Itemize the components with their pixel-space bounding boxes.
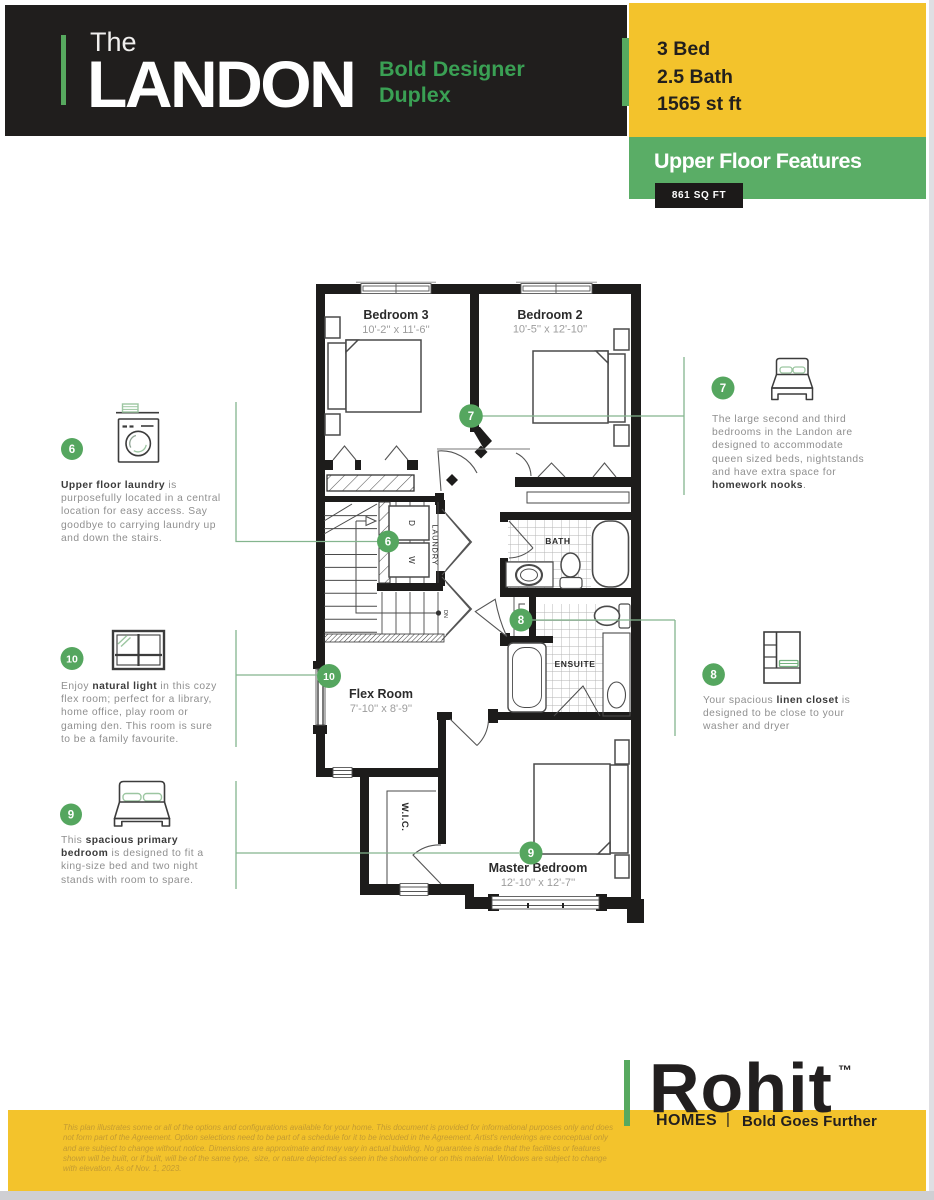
svg-text:8: 8	[518, 615, 525, 627]
svg-text:LAUNDRY: LAUNDRY	[431, 524, 440, 565]
svg-text:Bedroom 3: Bedroom 3	[363, 308, 428, 322]
svg-text:6: 6	[69, 444, 75, 456]
svg-text:7: 7	[468, 411, 474, 423]
svg-text:10'-5'' x 12'-10'': 10'-5'' x 12'-10''	[513, 324, 587, 336]
svg-text:10: 10	[66, 654, 78, 666]
svg-text:7: 7	[720, 383, 726, 395]
svg-text:Flex Room: Flex Room	[349, 687, 413, 701]
svg-text:Master Bedroom: Master Bedroom	[489, 861, 588, 875]
svg-text:D: D	[407, 520, 416, 526]
svg-text:W: W	[407, 556, 416, 564]
svg-text:8: 8	[710, 670, 717, 682]
svg-text:9: 9	[528, 848, 534, 860]
svg-text:ENSUITE: ENSUITE	[554, 659, 595, 669]
svg-text:10'-2'' x 11'-6'': 10'-2'' x 11'-6''	[362, 324, 429, 336]
svg-text:DN: DN	[442, 610, 448, 618]
svg-text:Bedroom 2: Bedroom 2	[517, 308, 582, 322]
svg-text:BATH: BATH	[545, 536, 570, 546]
svg-text:10: 10	[323, 671, 335, 683]
svg-text:6: 6	[385, 537, 391, 549]
svg-text:12'-10'' x 12'-7'': 12'-10'' x 12'-7''	[501, 877, 575, 889]
svg-text:7'-10'' x 8'-9'': 7'-10'' x 8'-9''	[350, 703, 412, 715]
svg-text:9: 9	[68, 810, 74, 822]
svg-text:W.I.C.: W.I.C.	[399, 803, 410, 832]
